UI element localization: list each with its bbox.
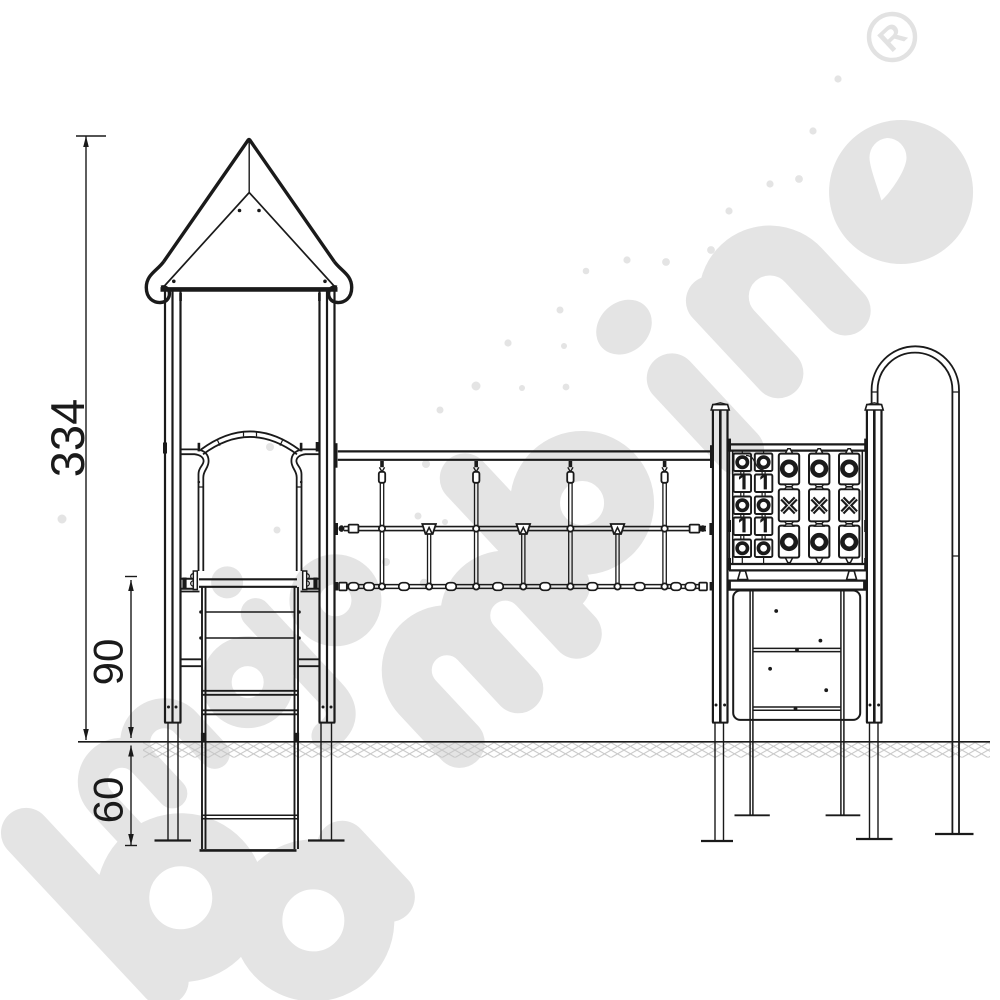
svg-text:90: 90 xyxy=(85,639,132,686)
svg-text:334: 334 xyxy=(41,399,94,477)
svg-text:60: 60 xyxy=(85,777,132,824)
